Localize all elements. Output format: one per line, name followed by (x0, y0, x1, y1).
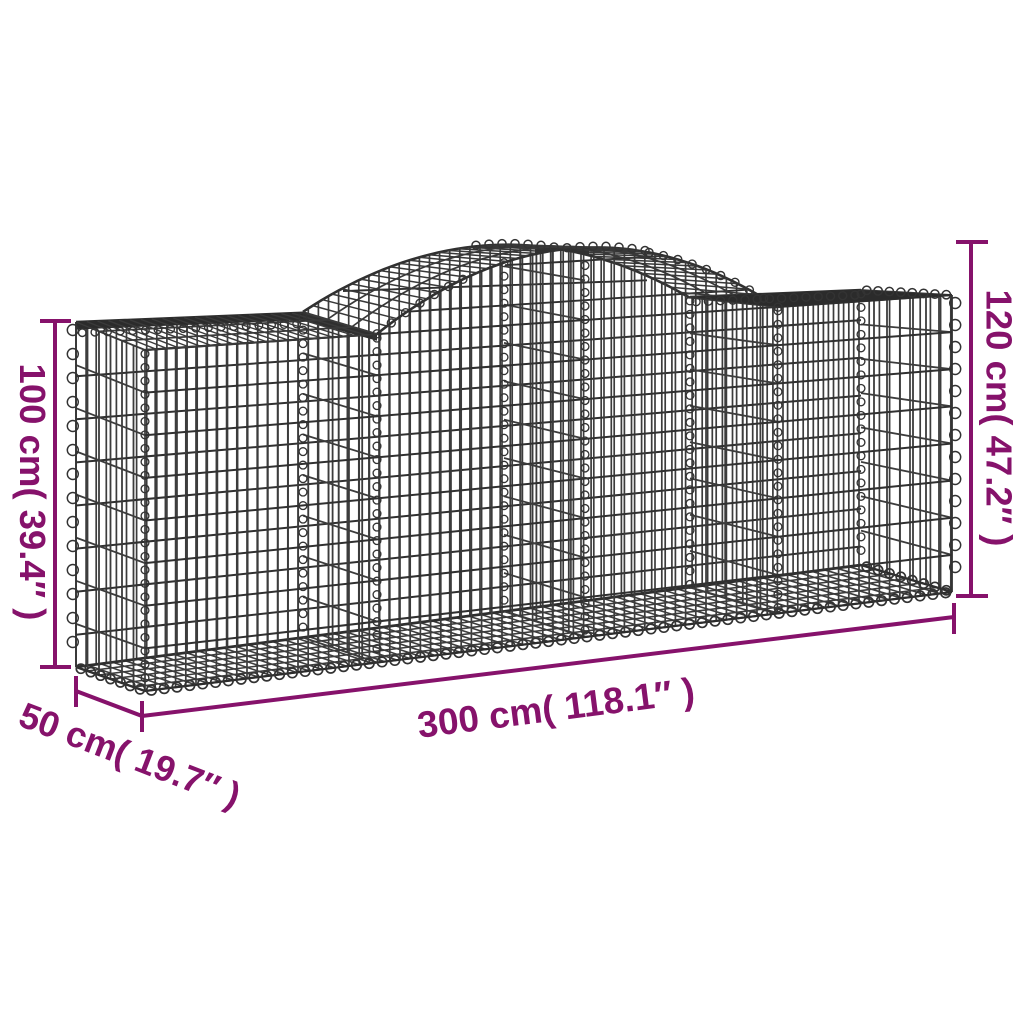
svg-text:120 cm( 47.2″ ): 120 cm( 47.2″ ) (979, 290, 1020, 547)
svg-text:100 cm( 39.4″ ): 100 cm( 39.4″ ) (12, 364, 53, 621)
